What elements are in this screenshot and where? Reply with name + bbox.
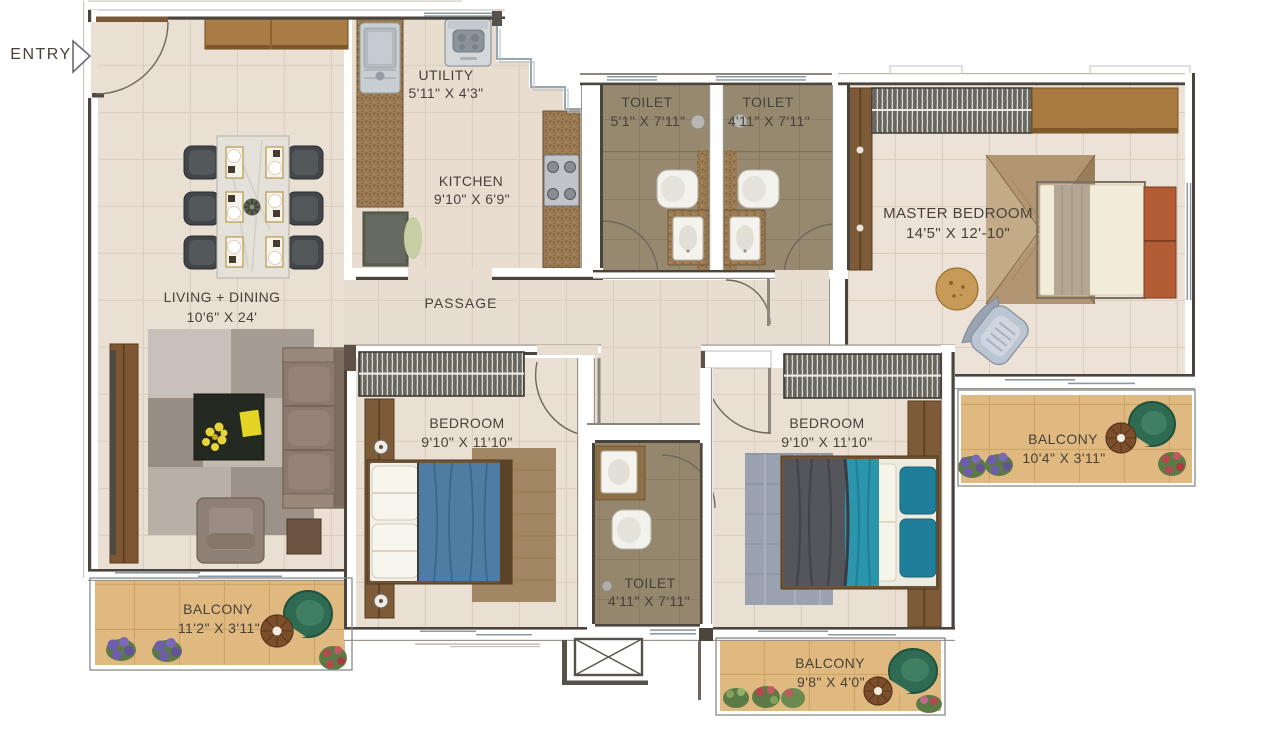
svg-text:BEDROOM: BEDROOM xyxy=(429,415,504,431)
svg-text:MASTER BEDROOM: MASTER BEDROOM xyxy=(883,205,1033,222)
svg-text:4'11" X 7'11": 4'11" X 7'11" xyxy=(728,113,810,129)
svg-text:KITCHEN: KITCHEN xyxy=(439,173,503,189)
svg-text:10'4" X 3'11": 10'4" X 3'11" xyxy=(1022,450,1105,466)
svg-text:BALCONY: BALCONY xyxy=(795,655,865,671)
svg-text:9'10" X 6'9": 9'10" X 6'9" xyxy=(434,191,510,207)
svg-text:PASSAGE: PASSAGE xyxy=(425,295,498,311)
svg-text:TOILET: TOILET xyxy=(621,94,672,110)
svg-text:9'10" X 11'10": 9'10" X 11'10" xyxy=(421,434,512,450)
svg-text:ENTRY: ENTRY xyxy=(10,46,71,63)
svg-text:11'2" X 3'11": 11'2" X 3'11" xyxy=(178,620,260,636)
svg-text:9'8" X 4'0": 9'8" X 4'0" xyxy=(797,674,865,690)
svg-text:TOILET: TOILET xyxy=(742,94,793,110)
svg-text:5'1" X 7'11": 5'1" X 7'11" xyxy=(610,113,685,129)
svg-text:BEDROOM: BEDROOM xyxy=(789,415,864,431)
svg-text:BALCONY: BALCONY xyxy=(183,601,253,617)
svg-text:LIVING + DINING: LIVING + DINING xyxy=(164,289,281,305)
svg-text:9'10" X 11'10": 9'10" X 11'10" xyxy=(781,434,872,450)
svg-text:UTILITY: UTILITY xyxy=(419,67,474,83)
svg-text:4'11" X 7'11": 4'11" X 7'11" xyxy=(608,593,690,609)
svg-text:TOILET: TOILET xyxy=(624,575,675,591)
svg-text:5'11" X 4'3": 5'11" X 4'3" xyxy=(408,85,483,101)
svg-text:BALCONY: BALCONY xyxy=(1028,431,1098,447)
svg-text:14'5" X 12'-10": 14'5" X 12'-10" xyxy=(906,225,1010,242)
svg-text:10'6" X 24': 10'6" X 24' xyxy=(187,309,258,325)
